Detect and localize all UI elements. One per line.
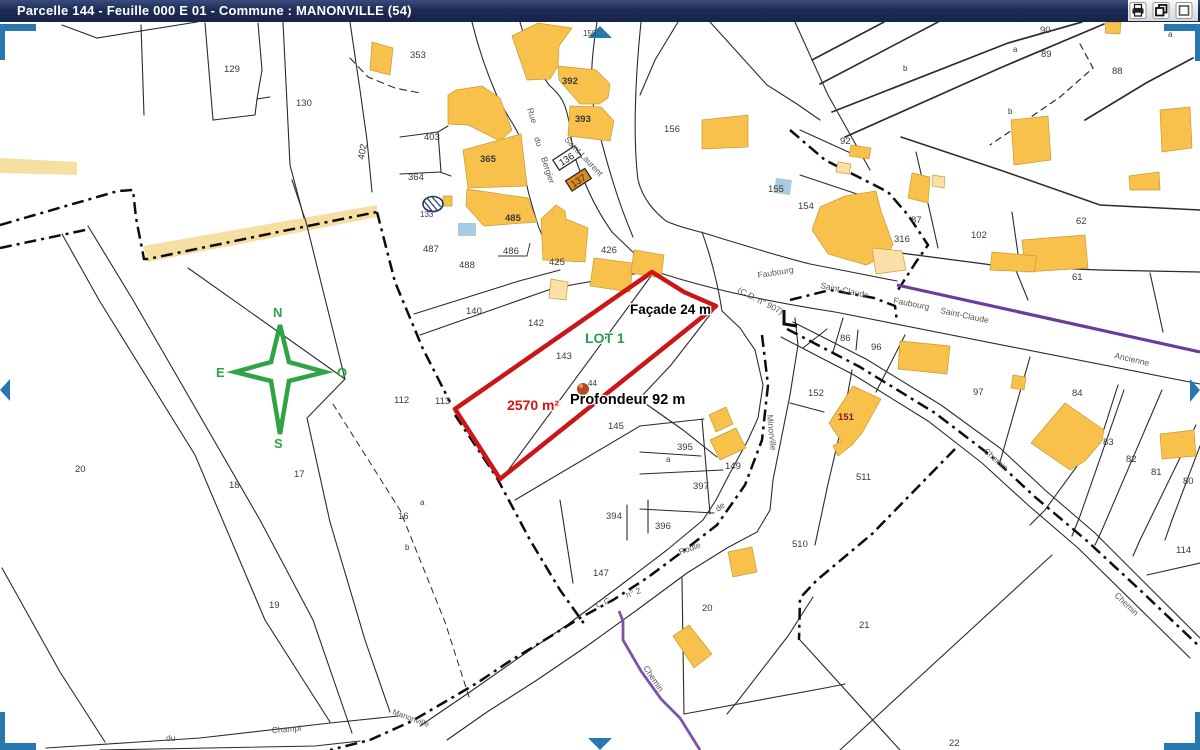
svg-text:a: a: [1168, 30, 1173, 39]
svg-text:143: 143: [556, 351, 572, 362]
svg-text:392: 392: [562, 76, 578, 87]
svg-text:159: 159: [583, 29, 597, 38]
svg-text:O: O: [337, 365, 347, 380]
svg-text:133: 133: [420, 210, 434, 219]
svg-text:b: b: [405, 543, 410, 552]
svg-text:du: du: [166, 733, 176, 743]
svg-text:154: 154: [798, 201, 814, 212]
svg-text:155: 155: [768, 184, 784, 195]
svg-text:142: 142: [528, 318, 544, 329]
svg-text:364: 364: [408, 172, 424, 183]
svg-text:149: 149: [725, 461, 741, 472]
svg-text:Champi: Champi: [271, 723, 301, 735]
svg-text:92: 92: [840, 136, 851, 147]
svg-text:113: 113: [435, 396, 450, 407]
svg-text:97: 97: [973, 387, 984, 398]
svg-text:88: 88: [1112, 66, 1123, 77]
svg-text:147: 147: [593, 568, 609, 579]
svg-text:488: 488: [459, 260, 475, 271]
svg-text:62: 62: [1076, 216, 1087, 227]
svg-text:86: 86: [840, 333, 851, 344]
svg-text:393: 393: [575, 114, 591, 125]
svg-text:90: 90: [1040, 25, 1051, 36]
svg-text:a: a: [1013, 45, 1018, 54]
svg-text:129: 129: [224, 64, 240, 75]
svg-text:18: 18: [229, 480, 240, 491]
svg-text:61: 61: [1072, 272, 1083, 283]
svg-text:82: 82: [1126, 454, 1137, 465]
svg-text:487: 487: [423, 244, 439, 255]
svg-text:510: 510: [792, 539, 808, 550]
svg-text:a: a: [420, 498, 425, 507]
svg-text:425: 425: [549, 257, 565, 268]
svg-text:a: a: [666, 455, 671, 464]
svg-text:Profondeur 92 m: Profondeur 92 m: [570, 392, 685, 408]
svg-text:511: 511: [856, 472, 871, 483]
svg-text:19: 19: [269, 600, 280, 611]
svg-text:87: 87: [911, 215, 922, 226]
svg-text:316: 316: [894, 234, 910, 245]
svg-text:114: 114: [1176, 545, 1191, 556]
svg-text:E: E: [216, 365, 225, 380]
svg-text:130: 130: [296, 98, 312, 109]
svg-text:22: 22: [949, 738, 960, 749]
svg-text:394: 394: [606, 511, 622, 522]
svg-text:S: S: [274, 436, 283, 451]
svg-text:84: 84: [1072, 388, 1083, 399]
svg-text:44: 44: [588, 379, 597, 388]
svg-text:426: 426: [601, 245, 617, 256]
svg-text:21: 21: [859, 620, 870, 631]
svg-text:LOT 1: LOT 1: [585, 330, 625, 346]
svg-text:96: 96: [871, 342, 882, 353]
svg-text:486: 486: [503, 246, 519, 257]
svg-text:152: 152: [808, 388, 824, 399]
svg-text:20: 20: [702, 603, 713, 614]
svg-text:396: 396: [655, 521, 671, 532]
svg-text:b: b: [1008, 107, 1013, 116]
svg-text:365: 365: [480, 154, 497, 165]
svg-text:80: 80: [1183, 476, 1194, 487]
svg-text:20: 20: [75, 464, 86, 475]
svg-text:112: 112: [394, 395, 409, 406]
svg-text:156: 156: [664, 124, 680, 135]
svg-text:353: 353: [410, 50, 426, 61]
svg-text:89: 89: [1041, 49, 1052, 60]
svg-text:81: 81: [1151, 467, 1162, 478]
svg-text:140: 140: [466, 306, 482, 317]
svg-text:2570 m²: 2570 m²: [507, 397, 559, 413]
svg-text:83: 83: [1103, 437, 1114, 448]
svg-text:403: 403: [424, 132, 440, 143]
svg-text:16: 16: [398, 511, 409, 522]
svg-text:485: 485: [505, 213, 522, 224]
svg-text:145: 145: [608, 421, 624, 432]
svg-text:151: 151: [838, 412, 855, 423]
svg-text:N: N: [273, 305, 282, 320]
svg-text:395: 395: [677, 442, 693, 453]
svg-text:Façade 24 m: Façade 24 m: [630, 302, 711, 317]
svg-text:397: 397: [693, 481, 709, 492]
svg-text:102: 102: [971, 230, 987, 241]
svg-text:b: b: [903, 64, 908, 73]
svg-text:17: 17: [294, 469, 305, 480]
